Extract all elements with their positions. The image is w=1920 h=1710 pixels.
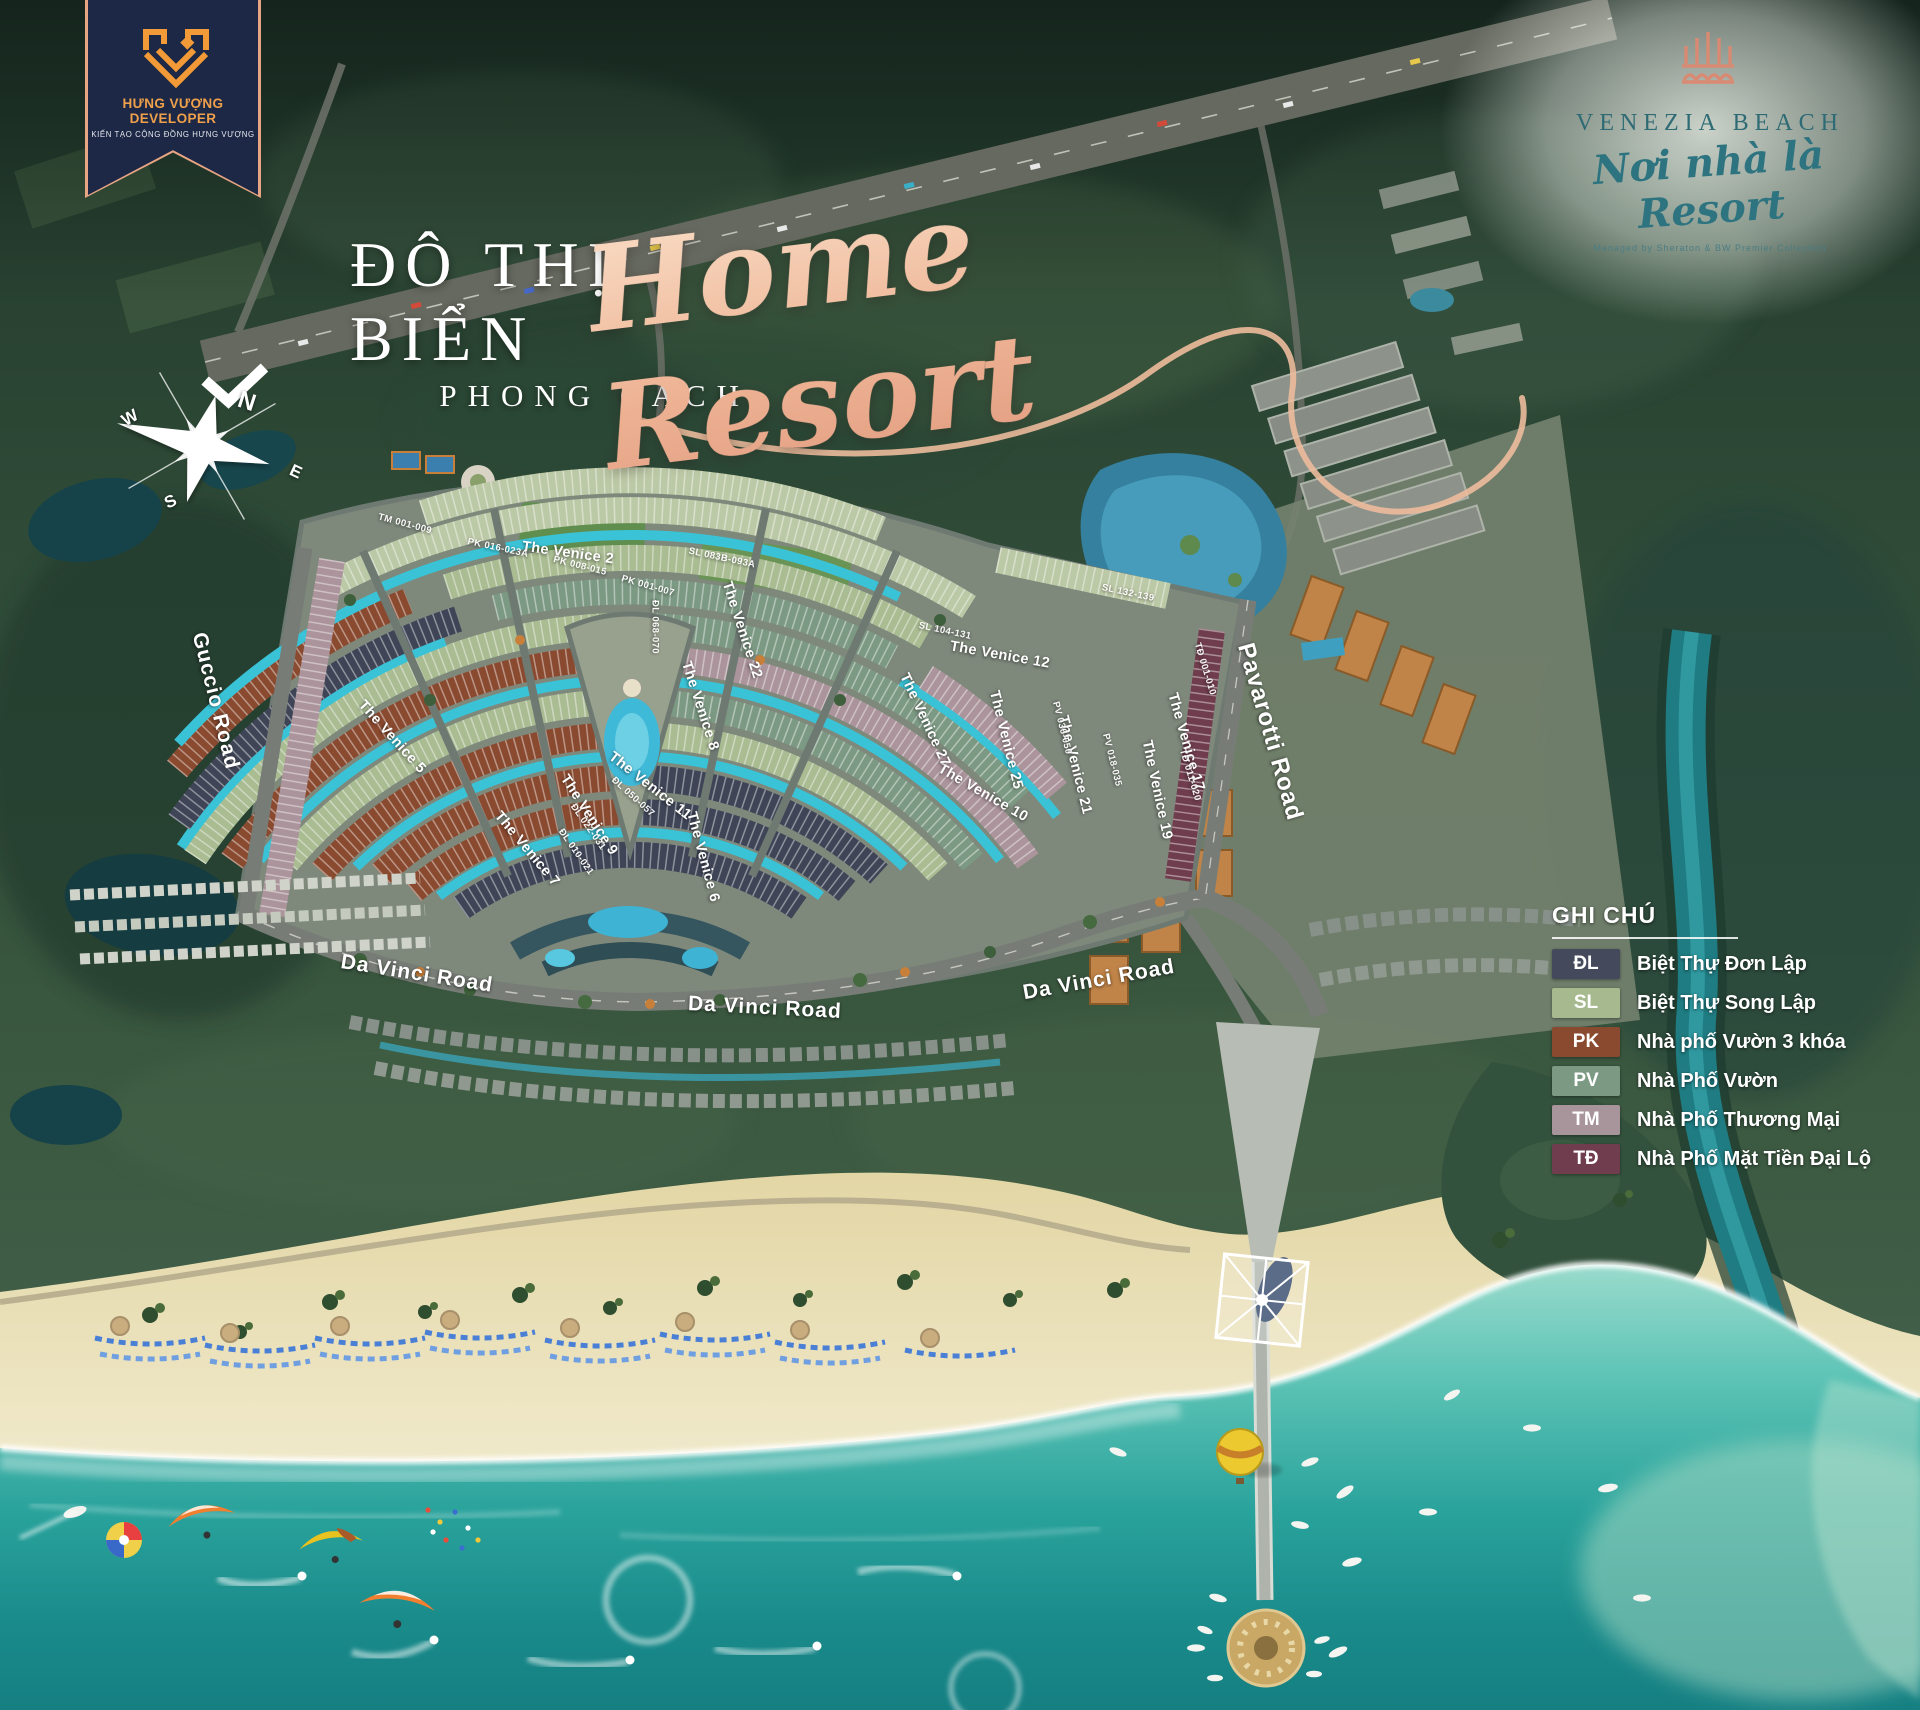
legend-swatch: PV bbox=[1552, 1066, 1620, 1096]
legend-row-pv: PV Nhà Phố Vườn bbox=[1552, 1066, 1871, 1096]
legend-label: Biệt Thự Song Lập bbox=[1637, 992, 1816, 1015]
legend-swatch: PK bbox=[1552, 1027, 1620, 1057]
legend-row-dl: ĐL Biệt Thự Đơn Lập bbox=[1552, 949, 1871, 979]
developer-name: HƯNG VƯỢNG DEVELOPER bbox=[88, 96, 258, 126]
legend-swatch: TĐ bbox=[1552, 1144, 1620, 1174]
legend-label: Nhà Phố Vườn bbox=[1637, 1070, 1778, 1093]
legend-rule bbox=[1552, 937, 1738, 939]
legend-label: Nhà phố Vườn 3 khóa bbox=[1637, 1031, 1846, 1054]
project-slogan: Nơi nhà là Resort bbox=[1572, 130, 1848, 243]
legend-row-pk: PK Nhà phố Vườn 3 khóa bbox=[1552, 1027, 1871, 1057]
masterplan-poster: HƯNG VƯỢNG DEVELOPER KIẾN TẠO CỘNG ĐỒNG … bbox=[0, 0, 1920, 1710]
legend-swatch: TM bbox=[1552, 1105, 1620, 1135]
project-managed-by: Managed by Sheraton & BW Premier Collect… bbox=[1575, 243, 1845, 253]
developer-tagline: KIẾN TẠO CỘNG ĐỒNG HƯNG VƯỢNG bbox=[88, 130, 258, 139]
legend-title: GHI CHÚ bbox=[1552, 902, 1871, 929]
legend: GHI CHÚ ĐL Biệt Thự Đơn Lập SL Biệt Thự … bbox=[1552, 902, 1871, 1183]
legend-label: Nhà Phố Thương Mại bbox=[1637, 1109, 1840, 1132]
legend-label: Nhà Phố Mặt Tiền Đại Lộ bbox=[1637, 1148, 1871, 1171]
legend-row-td: TĐ Nhà Phố Mặt Tiền Đại Lộ bbox=[1552, 1144, 1871, 1174]
block-label: ĐL 068-070 bbox=[650, 600, 661, 654]
developer-logo-icon bbox=[88, 8, 264, 98]
pier-attraction bbox=[1216, 1248, 1309, 1347]
legend-swatch: ĐL bbox=[1552, 949, 1620, 979]
legend-swatch: SL bbox=[1552, 988, 1620, 1018]
legend-row-sl: SL Biệt Thự Song Lập bbox=[1552, 988, 1871, 1018]
legend-row-tm: TM Nhà Phố Thương Mại bbox=[1552, 1105, 1871, 1135]
legend-label: Biệt Thự Đơn Lập bbox=[1637, 953, 1807, 976]
project-logo: VENEZIA BEACH Nơi nhà là Resort Managed … bbox=[1575, 30, 1845, 253]
